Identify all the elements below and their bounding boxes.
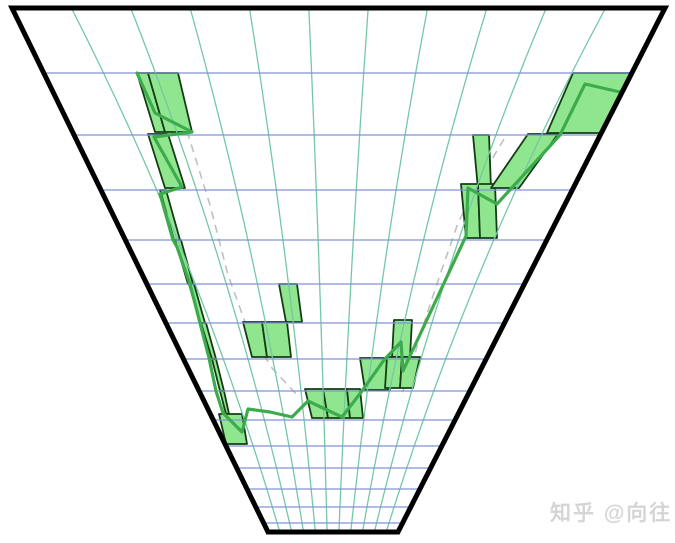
green-gridline xyxy=(374,8,546,532)
green-gridline xyxy=(249,8,315,532)
chart-layers xyxy=(12,8,665,532)
bar xyxy=(478,184,497,238)
green-gridline xyxy=(339,8,368,532)
watermark: 知乎 @向往 xyxy=(550,501,672,525)
bar xyxy=(491,134,558,188)
green-gridline xyxy=(363,8,487,532)
perspective-chart-stage: 知乎 @向往 xyxy=(0,0,675,543)
perspective-funnel-chart: 知乎 @向往 xyxy=(0,0,675,543)
green-gridline xyxy=(309,8,327,532)
bar xyxy=(473,135,491,189)
chart-clipped-group xyxy=(44,8,640,532)
